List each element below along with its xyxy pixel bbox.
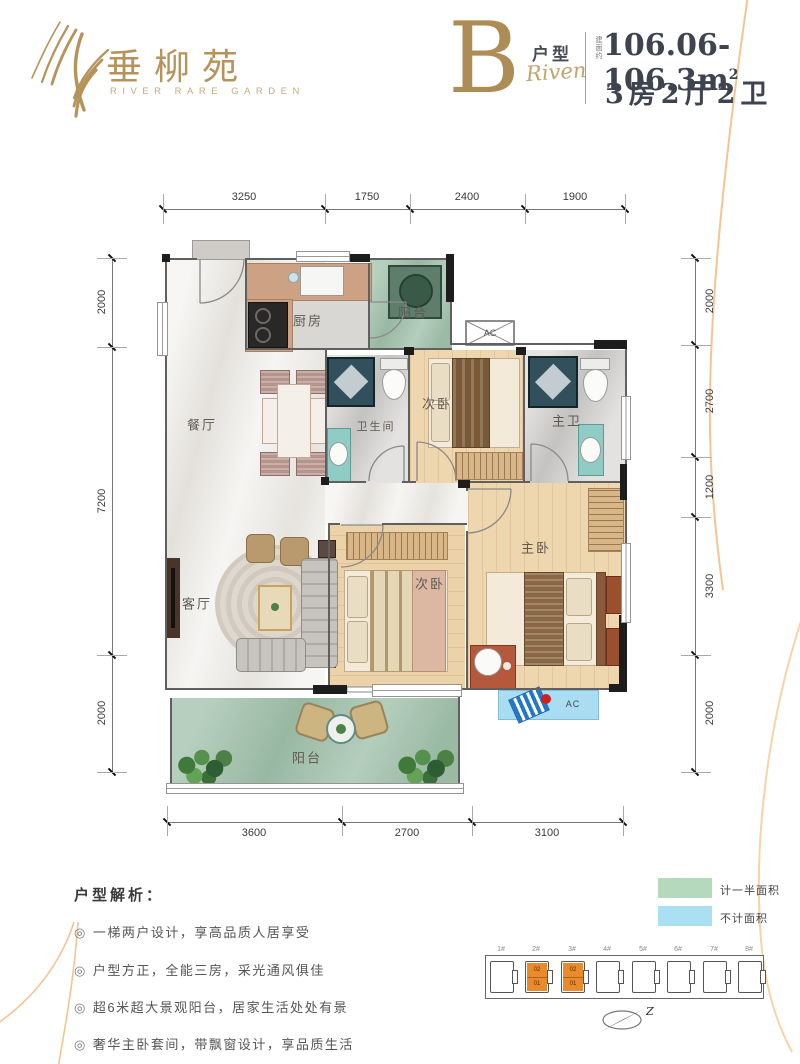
dim-ext xyxy=(681,457,711,458)
label-balcony-bottom: 阳台 xyxy=(292,748,322,767)
blanket xyxy=(370,570,414,672)
dining-table xyxy=(277,384,311,458)
legend-swatch-no-area xyxy=(658,906,712,926)
keyplan-building-number: 7# xyxy=(704,946,724,953)
keyplan-building-highlighted: 02 01 xyxy=(525,961,549,993)
stove-burner xyxy=(255,327,271,343)
entry-landing xyxy=(192,240,250,260)
keyplan-building xyxy=(667,961,691,993)
window xyxy=(372,684,462,697)
window xyxy=(621,543,631,623)
compass-icon: Z xyxy=(596,1002,660,1046)
table-plant xyxy=(271,603,279,611)
dim-ext xyxy=(342,806,343,836)
blanket xyxy=(452,358,490,448)
wall-chunk xyxy=(516,347,526,355)
master-bath-sink xyxy=(580,437,601,463)
wall-chunk xyxy=(620,464,627,500)
analysis-item: ◎一梯两户设计，享高品质人居享受 xyxy=(74,922,310,941)
cabinet-handle xyxy=(503,662,511,670)
legend-label-half-area: 计一半面积 xyxy=(720,882,780,898)
keyplan-unit: 02 xyxy=(563,963,583,978)
area-prefix: 建面约 xyxy=(593,36,603,60)
dim-bottom-1: 3600 xyxy=(224,827,284,839)
headboard xyxy=(596,572,606,666)
analysis-text: 超6米超大景观阳台，居家生活处处有景 xyxy=(93,1000,348,1015)
wall-chunk xyxy=(458,480,470,488)
tv-screen xyxy=(171,568,175,628)
pillow xyxy=(566,623,592,661)
wardrobe-master xyxy=(588,488,624,552)
wall-segment xyxy=(325,350,327,483)
legend-swatch-half-area xyxy=(658,878,712,898)
dim-ext xyxy=(681,258,711,259)
shower-master xyxy=(528,356,578,408)
stove-burner xyxy=(255,308,271,324)
layout-description: 3房2厅2卫 xyxy=(605,72,772,111)
dim-top-1: 3250 xyxy=(214,191,274,203)
blanket xyxy=(524,572,564,666)
label-ac-zone: AC xyxy=(566,699,581,709)
pillow xyxy=(566,578,592,616)
bullet-icon: ◎ xyxy=(74,1000,87,1015)
balcony-table xyxy=(326,714,356,744)
keyplan-building-number: 3# xyxy=(562,946,582,953)
dim-line-left xyxy=(112,258,113,772)
analysis-item: ◎奢华主卧套间，带飘窗设计，享品质生活 xyxy=(74,1034,354,1053)
wall-chunk xyxy=(594,340,627,349)
keyplan-building xyxy=(490,961,514,993)
dim-ext xyxy=(681,517,711,518)
label-bedroom2-bottom: 次卧 xyxy=(415,574,445,593)
keyplan-building-number: 5# xyxy=(633,946,653,953)
dim-right-2: 2700 xyxy=(704,371,716,431)
wall-segment xyxy=(368,263,370,350)
pillow xyxy=(347,576,368,618)
dim-ext xyxy=(97,258,127,259)
wall-segment xyxy=(523,355,525,483)
coffee-table xyxy=(258,585,292,631)
label-dining: 餐厅 xyxy=(187,415,217,434)
window xyxy=(621,396,631,460)
wall-chunk xyxy=(321,477,329,485)
brand-subtitle: RIVER RARE GARDEN xyxy=(110,86,305,97)
wall-chunk xyxy=(619,615,627,690)
dim-left-2: 7200 xyxy=(96,471,108,531)
dim-ext xyxy=(325,194,326,224)
dim-left-1: 2000 xyxy=(96,272,108,332)
bath-sink xyxy=(329,442,348,466)
floorplan-page: 垂柳苑 RIVER RARE GARDEN B 户型 Riven 建面约 106… xyxy=(0,0,800,1064)
dim-ext xyxy=(97,347,127,348)
wall-segment xyxy=(466,531,468,690)
unit-letter: B xyxy=(448,10,520,108)
keyplan-building xyxy=(738,961,762,993)
wall-segment xyxy=(328,525,330,690)
ac-symbol-label: AC xyxy=(484,328,497,338)
keyplan-building xyxy=(703,961,727,993)
wall-chunk xyxy=(446,254,454,302)
dim-top-3: 2400 xyxy=(437,191,497,203)
keyplan-building-number: 2# xyxy=(526,946,546,953)
analysis-text: 一梯两户设计，享高品质人居享受 xyxy=(93,925,311,940)
master-sink xyxy=(474,648,502,676)
sofa-small xyxy=(236,638,306,672)
dim-bottom-3: 3100 xyxy=(517,827,577,839)
legend-label-no-area: 不计面积 xyxy=(720,910,768,926)
armchair xyxy=(246,534,275,563)
sofa-main xyxy=(301,558,338,668)
keyplan-building-number: 1# xyxy=(491,946,511,953)
analysis-text: 户型方正，全能三房，采光通风俱佳 xyxy=(93,963,325,978)
dim-top-4: 1900 xyxy=(545,191,605,203)
dim-left-3: 2000 xyxy=(96,683,108,743)
dim-right-5: 2000 xyxy=(704,683,716,743)
bullet-icon: ◎ xyxy=(74,1037,87,1052)
label-balcony-top: 阳台 xyxy=(398,303,428,322)
wardrobe-secondary-top xyxy=(455,452,523,480)
wall-segment xyxy=(170,698,172,788)
hallway-floor xyxy=(325,483,468,525)
balcony-plants xyxy=(174,740,232,786)
dim-ext xyxy=(410,194,411,224)
analysis-title: 户型解析： xyxy=(74,884,164,905)
wall-chunk xyxy=(162,254,170,262)
svg-text:Z: Z xyxy=(645,1005,654,1018)
analysis-text: 奢华主卧套间，带飘窗设计，享品质生活 xyxy=(93,1037,354,1052)
brand-logo-swirl-icon xyxy=(30,20,110,120)
label-living: 客厅 xyxy=(182,594,212,613)
stove xyxy=(248,302,288,348)
wall-segment xyxy=(382,523,467,525)
keyplan-unit: 02 xyxy=(527,963,547,978)
label-kitchen: 厨房 xyxy=(293,311,323,330)
keyplan-building-number: 8# xyxy=(739,946,759,953)
wall-segment xyxy=(568,481,627,483)
dim-ext xyxy=(472,806,473,836)
label-bedroom2-top: 次卧 xyxy=(422,394,452,413)
balcony-plants xyxy=(394,740,454,786)
side-table xyxy=(318,540,336,558)
dim-ext xyxy=(163,194,164,224)
bullet-icon: ◎ xyxy=(74,963,87,978)
wall-segment xyxy=(245,260,247,350)
dim-ext xyxy=(167,806,168,836)
wardrobe-secondary-bottom xyxy=(346,532,448,560)
wall-chunk xyxy=(313,685,347,694)
dim-line-top xyxy=(163,209,625,210)
wall-segment xyxy=(442,688,627,690)
dim-bottom-2: 2700 xyxy=(377,827,437,839)
analysis-item: ◎户型方正，全能三房，采光通风俱佳 xyxy=(74,960,325,979)
wall-segment xyxy=(325,481,366,483)
pillow xyxy=(347,621,368,663)
keyplan-building-number: 4# xyxy=(597,946,617,953)
label-master: 主卧 xyxy=(521,538,551,557)
dim-ext xyxy=(681,655,711,656)
header-divider xyxy=(585,32,586,104)
wall-segment xyxy=(458,690,460,788)
shower-bath xyxy=(327,357,375,407)
brand-name: 垂柳苑 xyxy=(106,38,250,90)
lounge-cushion xyxy=(541,694,551,704)
label-master-bath: 主卫 xyxy=(552,411,582,430)
dim-ext xyxy=(97,655,127,656)
window xyxy=(166,783,464,794)
window xyxy=(157,302,168,356)
bullet-icon: ◎ xyxy=(74,925,87,940)
keyplan-unit: 01 xyxy=(563,978,583,992)
keyplan-unit: 01 xyxy=(527,978,547,992)
keyplan-building-highlighted: 02 01 xyxy=(561,961,585,993)
wall-segment xyxy=(408,355,410,483)
keyplan-building xyxy=(632,961,656,993)
analysis-item: ◎超6米超大景观阳台，居家生活处处有景 xyxy=(74,997,348,1016)
keyplan-building-number: 6# xyxy=(668,946,688,953)
wall-segment xyxy=(245,348,452,350)
dim-top-2: 1750 xyxy=(337,191,397,203)
kitchen-dish xyxy=(288,272,299,283)
dim-right-4: 3300 xyxy=(704,556,716,616)
dim-right-1: 2000 xyxy=(704,271,716,331)
dim-ext xyxy=(97,772,127,773)
wall-chunk xyxy=(404,347,414,355)
dim-ext xyxy=(681,772,711,773)
unit-script-text: Riven xyxy=(525,58,587,86)
window xyxy=(296,251,350,262)
dim-right-3: 1200 xyxy=(704,457,716,517)
dim-ext xyxy=(525,194,526,224)
label-bath: 卫生间 xyxy=(357,418,396,434)
kitchen-sink xyxy=(300,266,344,296)
dim-line-bottom xyxy=(167,822,623,823)
keyplan-building xyxy=(596,961,620,993)
dim-ext xyxy=(625,194,626,224)
dim-ext xyxy=(623,806,624,836)
dim-ext xyxy=(681,345,711,346)
